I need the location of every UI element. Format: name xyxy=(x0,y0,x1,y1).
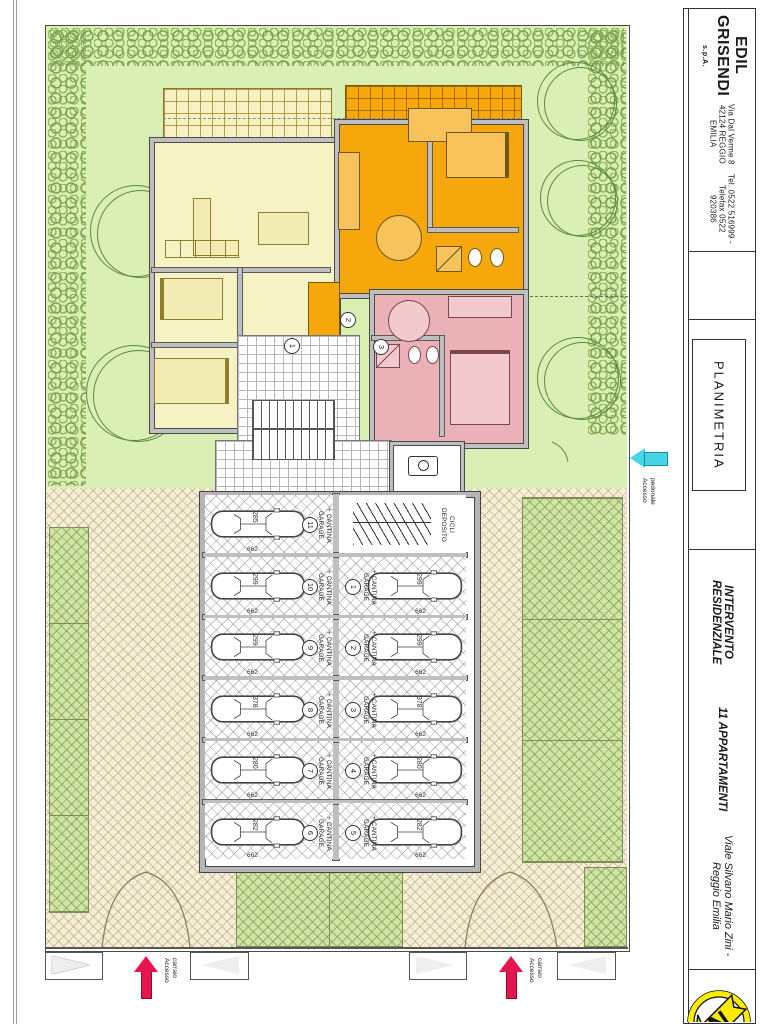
entrance-number-2: 2 xyxy=(340,312,356,328)
round-dining-table xyxy=(376,215,422,261)
pump-icon xyxy=(418,460,429,471)
gate-panel xyxy=(409,952,467,980)
company-name: EDIL GRISENDI s.p.A. xyxy=(695,15,749,96)
project-title-line1: INTERVENTO RESIDENZIALE xyxy=(710,554,734,691)
car-icon xyxy=(210,814,306,850)
garage-number: 4 xyxy=(345,763,361,779)
grass-paver-strip xyxy=(523,498,622,862)
pedestrian-access-label: Accessopedonale xyxy=(641,478,656,526)
garage-bay: 299 662 9 GARAGE+ CANTINA xyxy=(205,618,333,676)
project-section: INTERVENTO RESIDENZIALE 11 APPARTAMENTI … xyxy=(689,554,755,964)
dining-table xyxy=(258,212,309,245)
bed xyxy=(446,132,509,178)
bike-rack-icon xyxy=(353,503,431,545)
partition-wall xyxy=(440,336,444,436)
wc xyxy=(408,346,421,364)
garage-bay: 282 662 5 GARAGE+ CANTINA xyxy=(339,803,466,859)
tree-icon xyxy=(540,160,616,236)
bed xyxy=(154,358,229,404)
sofa xyxy=(338,152,360,230)
garage-bay: 280 662 4 GARAGE+ CANTINA xyxy=(339,741,466,799)
hedge-left xyxy=(48,30,86,486)
vehicle-access-label: Accessocarraio xyxy=(163,958,178,1006)
staircase-rail xyxy=(252,428,333,430)
bidet xyxy=(490,248,504,267)
north-compass-icon: N xyxy=(684,970,753,1022)
tree-icon xyxy=(537,337,619,419)
company-phone: Tel. 0522 516999 - Telefax 0522 920386 xyxy=(709,172,736,247)
garage-number: 3 xyxy=(345,702,361,718)
partition-wall xyxy=(428,228,518,232)
grass-paver-strip xyxy=(237,868,402,946)
entrance-number-1: 1 xyxy=(284,338,300,354)
project-address: Viale Silvano Mario Zini - Reggio Emilia xyxy=(710,827,734,964)
car-icon xyxy=(210,568,306,604)
fence-line xyxy=(45,947,628,949)
staircase xyxy=(252,400,335,460)
site-plan-sheet: 1 2 3 285 662 11 GARAGE+ CANTINA 299 662… xyxy=(0,0,768,1024)
north-compass-section: N xyxy=(684,970,753,1022)
sofa xyxy=(193,198,211,246)
partition-wall xyxy=(152,343,240,347)
vehicle-access-arrow-icon xyxy=(499,956,523,999)
garage-bay: 280 662 7 GARAGE+ CANTINA xyxy=(205,741,333,799)
garage-bay: 282 662 6 GARAGE+ CANTINA xyxy=(205,803,333,859)
company-section: EDIL GRISENDI s.p.A. Via Dal Verme 8 421… xyxy=(689,15,755,247)
company-address: Via Dal Verme 8 42124 REGGIO EMILIA xyxy=(709,96,736,171)
shower xyxy=(436,246,462,272)
wc xyxy=(468,248,482,267)
bed xyxy=(450,350,510,425)
garage-number: 5 xyxy=(345,825,361,841)
project-title-line2: 11 APPARTAMENTI xyxy=(716,691,728,828)
garage-bay: 378 662 3 GARAGE+ CANTINA xyxy=(339,680,466,738)
gate-panel xyxy=(45,952,103,980)
sheet-fold-line xyxy=(13,0,14,1024)
garage-bay: 299 662 1 GARAGE+ CANTINA xyxy=(339,557,466,615)
car-icon xyxy=(210,506,306,542)
garage-bay: 378 662 8 GARAGE+ CANTINA xyxy=(205,680,333,738)
grass-paver-strip xyxy=(585,868,626,946)
garden-divider-line xyxy=(520,296,628,297)
grass-paver-strip xyxy=(50,528,88,912)
bidet xyxy=(426,346,439,364)
vehicle-access-arrow-icon xyxy=(134,956,158,999)
garage-number: 2 xyxy=(345,640,361,656)
car-icon xyxy=(210,629,306,665)
entrance-number-3: 3 xyxy=(373,339,389,355)
kitchen-counter xyxy=(165,240,239,258)
bed xyxy=(160,278,223,320)
round-dining-table xyxy=(388,300,430,342)
vehicle-access-label: Accessocarraio xyxy=(528,958,543,1006)
drawing-title: PLANIMETRIA xyxy=(712,361,727,470)
car-icon xyxy=(210,691,306,727)
car-icon xyxy=(210,752,306,788)
garage-bay: 299 662 10 GARAGE+ CANTINA xyxy=(205,557,333,615)
tree-icon xyxy=(537,62,615,140)
garage-bay: 299 662 2 GARAGE+ CANTINA xyxy=(339,618,466,676)
hedge-top xyxy=(50,28,624,66)
title-block: EDIL GRISENDI s.p.A. Via Dal Verme 8 421… xyxy=(683,8,756,1024)
orange-entry-strip xyxy=(308,282,340,342)
garage-number: 1 xyxy=(345,579,361,595)
bike-storage: DEPOSITOCICLI xyxy=(339,495,466,553)
gate-panel xyxy=(557,952,616,980)
drawing-title-box: PLANIMETRIA xyxy=(692,339,746,491)
sheet-fold-line xyxy=(16,0,17,1024)
gate-panel xyxy=(190,952,249,980)
sofa xyxy=(448,296,512,318)
garage-bay: 285 662 11 GARAGE+ CANTINA xyxy=(205,495,333,553)
